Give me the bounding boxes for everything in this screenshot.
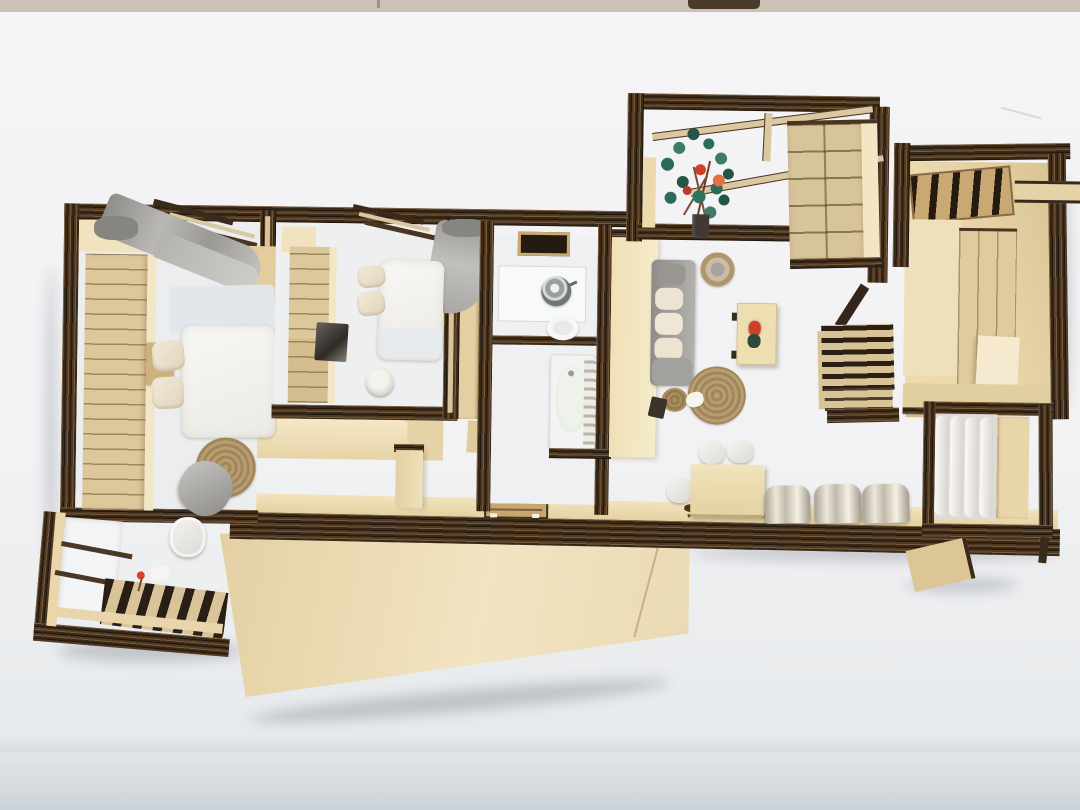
- bedroom2-pillow: [356, 290, 387, 317]
- apartment-model: [0, 0, 1080, 810]
- utility-bottom-frame: [922, 523, 1052, 539]
- hanging-basket: [700, 252, 734, 286]
- white-paper-scrap: [150, 566, 169, 581]
- utility-right-frame: [1039, 405, 1053, 541]
- metal-chair: [764, 485, 811, 524]
- kitchen-louvered-window: [909, 165, 1015, 224]
- louvered-screen: [817, 320, 899, 424]
- wall-shelf: [1015, 181, 1080, 204]
- white-pouf: [699, 440, 725, 464]
- metal-chair: [862, 483, 910, 523]
- photo-canvas: [0, 0, 1080, 810]
- toilet-seat: [553, 320, 573, 335]
- dark-object: [648, 396, 668, 419]
- kitchen-back-wall: [903, 219, 961, 376]
- plant-flower-red: [683, 186, 692, 195]
- support-pin: [1038, 537, 1049, 564]
- bath-faucet: [568, 370, 574, 376]
- white-pouf: [727, 439, 754, 463]
- hatch-hinge-left: [490, 513, 497, 517]
- bedroom2-sheet-fold: [379, 328, 441, 359]
- plant-leaf: [687, 128, 699, 140]
- bathroom-south-edge: [549, 448, 611, 459]
- towel-ladder: [583, 359, 596, 445]
- sofa-cushion: [655, 288, 683, 310]
- sofa-blanket: [652, 358, 692, 387]
- bathroom-divider: [492, 335, 596, 345]
- metal-chair: [814, 484, 862, 524]
- chest-of-drawers: [787, 119, 882, 269]
- plant-leaf: [715, 152, 727, 164]
- plant-flower-orange: [713, 174, 725, 186]
- sofa-cushion: [655, 313, 683, 335]
- master-balcony: [32, 507, 243, 667]
- master-bed-duvet: [182, 325, 275, 437]
- chest-bottom-edge: [790, 257, 882, 269]
- master-pillow: [151, 376, 185, 410]
- plant-leaf: [703, 138, 714, 149]
- screen-base: [827, 408, 899, 424]
- hatch-hinge-right: [532, 514, 539, 518]
- dark-planter: [692, 214, 709, 238]
- sofa-cushion: [654, 338, 682, 360]
- pleated-curtain: [949, 416, 963, 517]
- screen-louvers: [821, 324, 894, 391]
- chest-side-panel: [861, 119, 880, 259]
- master-pillow: [151, 339, 186, 372]
- t-wall: [395, 450, 423, 508]
- utility-side-panel: [996, 416, 1029, 518]
- flowering-plant: [654, 120, 752, 245]
- transom-window: [518, 232, 570, 257]
- plant-leaf: [692, 190, 705, 203]
- kitchen-top-frame: [894, 143, 1070, 161]
- table-flower-leaf: [747, 334, 760, 348]
- vanity-mirror: [314, 322, 348, 362]
- table-leg: [732, 313, 737, 321]
- table-leg: [731, 351, 736, 359]
- roof-beam-post: [762, 113, 772, 161]
- plant-leaf: [673, 142, 685, 154]
- bedroom2-pillow: [356, 264, 386, 288]
- plant-leaf: [661, 158, 674, 171]
- plant-leaf: [664, 192, 676, 204]
- slab-side-face: [217, 534, 689, 711]
- master-wardrobe: [82, 254, 148, 511]
- pleated-curtain: [979, 417, 993, 517]
- dining-table: [690, 464, 765, 517]
- white-pouf: [666, 477, 692, 503]
- pleated-curtain: [934, 416, 948, 516]
- kitchen-left-frame: [893, 143, 911, 267]
- bedroom2-south-wall: [271, 404, 457, 421]
- storage-band: [257, 418, 408, 460]
- pleated-curtain: [964, 417, 978, 517]
- master-curtain-fringe: [94, 216, 138, 241]
- plant-leaf: [718, 194, 729, 205]
- sofa-pillow: [658, 262, 686, 285]
- plant-flower-red: [695, 164, 706, 175]
